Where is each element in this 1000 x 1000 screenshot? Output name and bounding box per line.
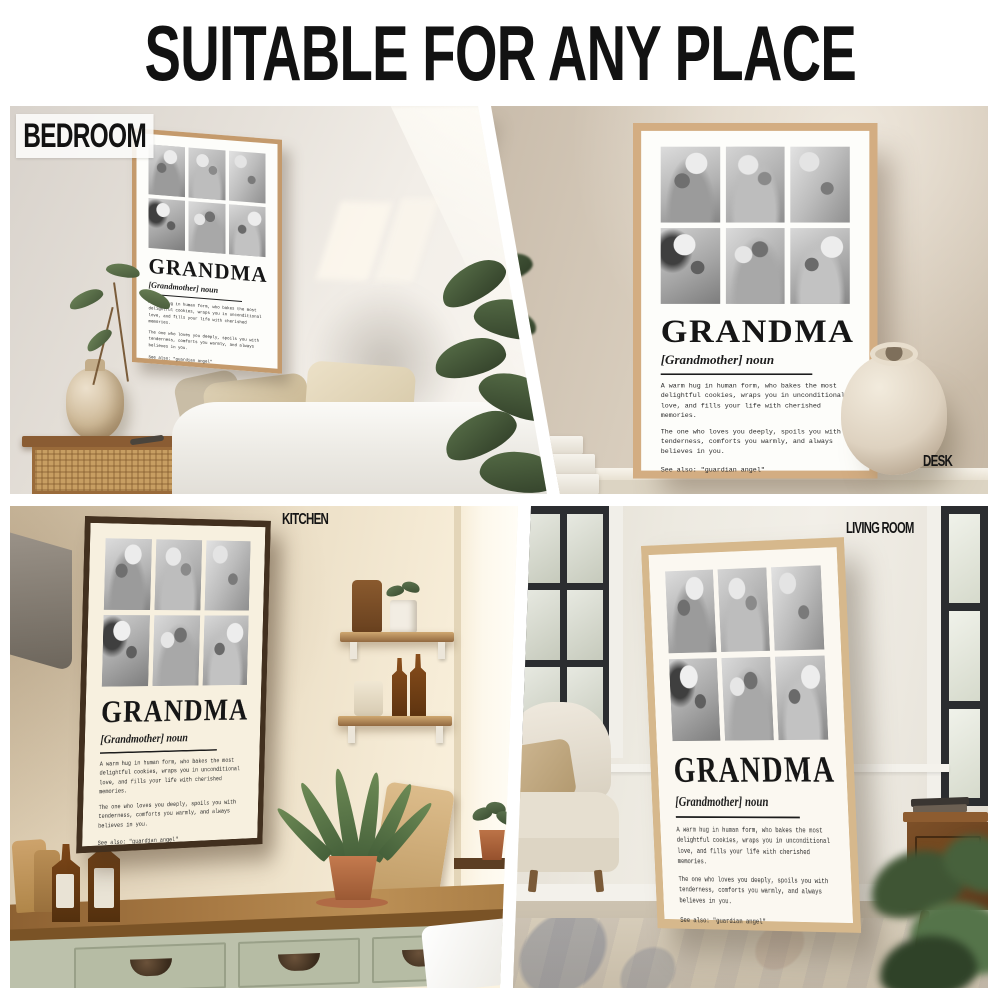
drawer xyxy=(238,938,360,988)
crock-jar xyxy=(354,681,383,716)
poster-subtitle: [Grandmother] noun xyxy=(661,354,812,375)
window-pane xyxy=(949,514,980,603)
poster-photo-5 xyxy=(153,615,200,686)
terracotta-pot xyxy=(478,830,506,860)
poster-photo-3 xyxy=(771,565,824,650)
window-pane xyxy=(567,514,604,583)
grandma-poster: GRANDMA [Grandmother] noun A warm hug in… xyxy=(132,128,282,374)
poster-print: GRANDMA [Grandmother] noun A warm hug in… xyxy=(649,547,853,923)
window-casing xyxy=(609,506,623,758)
shelf-bracket xyxy=(350,642,357,659)
poster-photo-2 xyxy=(189,148,226,201)
poster-see-also: See also: "guardian angel" xyxy=(680,916,836,930)
poster-photo-1 xyxy=(665,570,716,654)
living-room-label: LIVING ROOM xyxy=(846,521,914,537)
poster-photo-1 xyxy=(661,147,720,223)
poster-photo-6 xyxy=(775,656,828,741)
drawer xyxy=(74,942,226,988)
poster-print: GRANDMA [Grandmother] noun A warm hug in… xyxy=(82,523,265,846)
window-light xyxy=(460,506,518,936)
nightstand-rattan-drawer xyxy=(32,447,190,494)
farmhouse-sink xyxy=(421,917,518,988)
shelf-bracket xyxy=(436,726,443,743)
poster-photo-4 xyxy=(661,228,720,304)
bottle-label xyxy=(56,874,74,908)
shelf-bracket xyxy=(348,726,355,743)
window-pane xyxy=(567,590,604,659)
poster-photo-4 xyxy=(102,615,150,687)
side-table xyxy=(903,812,988,822)
window-pane xyxy=(523,514,560,583)
desk-scene: GRANDMA [Grandmother] noun A warm hug in… xyxy=(491,106,988,494)
amber-bottle xyxy=(392,658,407,716)
poster-photo-2 xyxy=(726,147,785,223)
poster-photo-grid xyxy=(661,147,850,304)
living-room-scene: GRANDMA [Grandmother] noun A warm hug in… xyxy=(513,506,988,988)
poster-photo-6 xyxy=(202,615,248,685)
poster-see-also: See also: "guardian angel" xyxy=(98,833,243,849)
poster-definition-2: The one who loves you deeply, spoils you… xyxy=(149,330,266,358)
window-pane xyxy=(949,709,980,798)
bedroom-label-tag: BEDROOM xyxy=(16,114,153,158)
window-pane xyxy=(949,611,980,700)
drawer-handle xyxy=(278,953,320,971)
poster-title: GRANDMA xyxy=(673,752,830,789)
poster-see-also: See also: "guardian angel" xyxy=(661,466,850,476)
poster-photo-4 xyxy=(149,198,186,251)
poster-photo-1 xyxy=(149,144,186,197)
poster-photo-5 xyxy=(721,657,773,741)
poster-definition-2: The one who loves you deeply, spoils you… xyxy=(98,798,244,831)
wooden-jug xyxy=(352,580,382,632)
poster-photo-1 xyxy=(104,538,152,610)
ceramic-pot xyxy=(390,600,417,633)
poster-photo-2 xyxy=(718,567,770,652)
grandma-poster: GRANDMA [Grandmother] noun A warm hug in… xyxy=(641,537,861,933)
poster-definition-2: The one who loves you deeply, spoils you… xyxy=(661,428,850,457)
poster-photo-6 xyxy=(791,228,850,304)
poster-photo-3 xyxy=(204,540,250,610)
poster-print: GRANDMA [Grandmother] noun A warm hug in… xyxy=(641,131,869,471)
poster-definition-1: A warm hug in human form, who bakes the … xyxy=(99,756,245,797)
poster-photo-5 xyxy=(726,228,785,304)
poster-photo-grid xyxy=(665,565,828,741)
armchair-base xyxy=(513,838,619,872)
header: SUITABLE FOR ANY PLACE xyxy=(0,0,1000,106)
poster-definition-2: The one who loves you deeply, spoils you… xyxy=(678,875,835,910)
vase-opening xyxy=(870,342,918,366)
poster-photo-5 xyxy=(189,201,226,254)
shelf-bracket xyxy=(438,642,445,659)
poster-photo-grid xyxy=(102,538,251,686)
poster-photo-6 xyxy=(229,204,266,257)
product-collage: SUITABLE FOR ANY PLACE GRANDMA [Grandmot… xyxy=(0,0,1000,1000)
shelf-plant xyxy=(386,582,426,604)
grandma-poster: GRANDMA [Grandmother] noun A warm hug in… xyxy=(76,516,271,853)
wall-shelf xyxy=(338,716,452,726)
bottle-label xyxy=(94,868,114,908)
drawer-handle xyxy=(130,958,172,976)
bedroom-scene: GRANDMA [Grandmother] noun A warm hug in… xyxy=(10,106,547,494)
kitchen-scene: GRANDMA [Grandmother] noun A warm hug in… xyxy=(10,506,518,988)
poster-title: GRANDMA xyxy=(661,315,850,348)
desk-label: DESK xyxy=(923,454,952,470)
poster-title: GRANDMA xyxy=(101,695,247,728)
kitchen-label: KITCHEN xyxy=(282,512,328,528)
window xyxy=(941,506,988,806)
poster-photo-2 xyxy=(155,539,202,610)
poster-photo-3 xyxy=(229,151,266,204)
poster-photo-3 xyxy=(791,147,850,223)
window-pane xyxy=(523,590,560,659)
wall-shelf xyxy=(340,632,454,642)
poster-definition-1: A warm hug in human form, who bakes the … xyxy=(676,826,834,870)
range-hood xyxy=(10,530,72,673)
poster-print: GRANDMA [Grandmother] noun A warm hug in… xyxy=(137,133,278,369)
poster-photo-grid xyxy=(149,144,266,257)
chair-leg xyxy=(594,870,604,893)
poster-subtitle: [Grandmother] noun xyxy=(675,795,800,819)
page-title: SUITABLE FOR ANY PLACE xyxy=(144,14,856,92)
poster-definition-1: A warm hug in human form, who bakes the … xyxy=(661,382,850,421)
poster-photo-4 xyxy=(669,658,720,741)
bedroom-label: BEDROOM xyxy=(23,117,146,155)
amber-bottle xyxy=(410,654,426,716)
poster-subtitle: [Grandmother] noun xyxy=(100,731,217,754)
poster-see-also: See also: "guardian angel" xyxy=(149,354,266,370)
window-frame xyxy=(454,506,461,936)
